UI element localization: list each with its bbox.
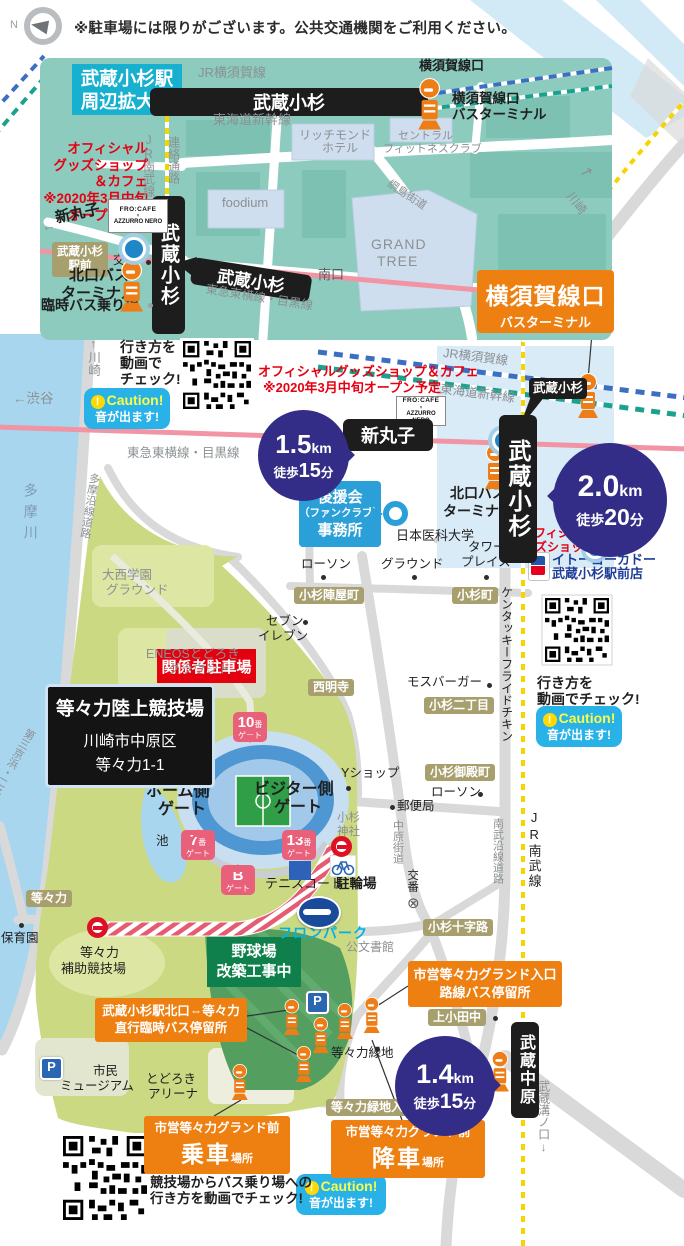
map-label: オフィシャルグッズショップ＆カフェ	[258, 365, 479, 379]
town-badge: 小杉二丁目	[424, 697, 494, 714]
map-label: 行き方を動画でチェック!	[150, 1192, 303, 1206]
inset-label: JR南武線	[142, 133, 155, 197]
town-badge: 西明寺	[308, 679, 354, 696]
bus-stop-icon	[336, 1003, 354, 1040]
town-badge: 小杉町	[452, 587, 498, 604]
bus-stop-box-boarding: 市営等々力グランド前 乗車場所	[144, 1116, 290, 1174]
route-map-poster: N ※駐車場には限りがございます。公共交通機関をご利用ください。 武蔵小杉駅 周…	[0, 0, 684, 1246]
poi-dot	[146, 260, 151, 265]
map-label: ゲート	[274, 800, 322, 817]
town-badge: 等々力	[26, 890, 72, 907]
map-label: 東急東横線・目黒線	[127, 447, 240, 460]
caution-box-1: !Caution! 音が出ます!	[84, 388, 170, 429]
bus-stop-icon	[231, 1064, 249, 1101]
map-label: 動画で	[120, 356, 162, 371]
inset-label: 横須賀線口	[452, 92, 520, 106]
town-badge: 小杉御殿町	[425, 764, 495, 781]
map-label: ←渋谷	[13, 392, 54, 406]
compass-icon	[24, 7, 62, 45]
map-label: 大西学園	[102, 569, 152, 582]
inset-label: ←	[40, 217, 57, 234]
poi-dot	[478, 792, 483, 797]
station-bubble-musashikosugi: 武蔵小杉	[529, 378, 587, 399]
poi-dot	[19, 923, 24, 928]
station-bar-musashikosugi-main: 武蔵小杉	[499, 415, 537, 563]
poi-dot	[375, 1047, 380, 1052]
gate-badge-10: 10番ゲート	[233, 712, 267, 742]
tennis-court-block	[289, 861, 311, 880]
map-label: イレブン	[258, 630, 308, 643]
gate-badge-7: 7番ゲート	[181, 830, 215, 860]
station-bar-shinmaruko: 新丸子	[343, 419, 433, 451]
map-label: グラウンド	[381, 558, 444, 571]
stadium-address-box: 等々力陸上競技場 川崎市中原区 等々力1-1	[45, 684, 215, 788]
poi-dot	[412, 575, 417, 580]
baseball-renovation-box: 野球場改築工事中	[207, 937, 301, 987]
map-label: 等々力緑地	[331, 1047, 394, 1060]
inset-label: 横須賀線口	[419, 59, 484, 73]
map-label: ローソン	[431, 786, 481, 799]
map-label: 武蔵小杉駅前店	[552, 567, 643, 581]
inset-label: foodium	[222, 196, 268, 210]
poi-dot	[148, 303, 153, 308]
inset-label: リッチモンド	[299, 129, 371, 142]
bus-stop-icon	[295, 1046, 313, 1083]
inset-label: 連絡通路	[167, 136, 180, 184]
inset-label: セントラル	[398, 131, 453, 143]
map-label: 交番	[406, 869, 418, 892]
no-entry-icon	[87, 917, 108, 938]
parking-icon: P	[306, 991, 329, 1014]
caution-box-2: !Caution! 音が出ます!	[536, 706, 622, 747]
map-label: 多摩川	[23, 483, 38, 546]
parking-notice: ※駐車場には限りがございます。公共交通機関をご利用ください。	[74, 17, 516, 38]
inset-label: ホテル	[322, 142, 358, 155]
map-label: ビジター側	[254, 782, 334, 799]
map-label: モスバーガー	[407, 676, 482, 689]
bus-stop-box-rinji: 武蔵小杉駅北口⇔等々力直行臨時バス停留所	[95, 998, 247, 1042]
frocafe-logo: FRO:CAFE×AZZURRO NERO	[108, 199, 168, 233]
inset-label: GRAND	[371, 237, 427, 252]
map-label: 郵便局	[397, 800, 435, 813]
inset-label: JR横須賀線	[198, 66, 266, 80]
poi-dot	[390, 805, 395, 810]
parking-icon: P	[40, 1057, 63, 1080]
map-label: ↑川崎	[86, 337, 99, 376]
map-label: ⊗	[407, 896, 420, 912]
map-label: 南武沿線道路	[491, 818, 503, 884]
map-label: ミュージアム	[60, 1080, 134, 1093]
bus-stop-icon	[283, 999, 301, 1036]
inset-label: フィットネスクラブ	[383, 144, 482, 156]
bus-stop-icon	[312, 1017, 330, 1054]
bus-stop-icon	[417, 78, 442, 131]
poi-dot	[487, 683, 492, 688]
map-label: 保育園	[1, 932, 39, 945]
poi-dot	[303, 620, 308, 625]
distance-badge-1-5km: 1.5km 徒歩15分	[258, 410, 349, 501]
location-marker	[122, 237, 146, 261]
map-label: 日本医科大学	[396, 529, 474, 543]
bus-stop-box-ground-iriguchi: 市営等々力グランド入口路線バス停留所	[408, 961, 562, 1007]
inset-label: TREE	[377, 254, 418, 269]
map-label: ローソン	[301, 558, 351, 571]
poi-dot	[346, 786, 351, 791]
map-label: アリーナ	[148, 1088, 198, 1101]
map-label: 等々力	[80, 946, 119, 960]
map-label: グラウンド	[168, 663, 231, 676]
bus-stop-icon	[363, 997, 381, 1034]
poi-dot	[493, 1016, 498, 1021]
gate-badge-13: 13番ゲート	[282, 830, 316, 860]
station-bar-musashinakahara: 武蔵中原	[511, 1022, 539, 1118]
town-badge: 小杉十字路	[423, 919, 493, 936]
bus-stop-icon	[119, 260, 144, 313]
no-entry-icon	[331, 836, 352, 857]
map-label: ゲート	[158, 802, 206, 819]
map-label: JR南武線	[527, 810, 541, 889]
bicycle-parking-icon	[330, 855, 356, 882]
poi-dot	[484, 575, 489, 580]
map-label: 行き方を	[120, 340, 176, 355]
inset-label: 南口	[318, 268, 344, 282]
map-label: ENEOSとどろき	[146, 648, 240, 661]
town-badge: 小杉陣屋町	[294, 587, 364, 604]
yokosuka-exit-terminal-box: 横須賀線口 バスターミナル	[477, 270, 614, 333]
frontale-park-logo	[297, 896, 341, 929]
poi-dot	[321, 575, 326, 580]
gate-badge-B: Bゲート	[221, 865, 255, 895]
map-label: 中原街道	[391, 820, 403, 864]
map-label: 小杉	[337, 812, 360, 824]
map-label: 市民	[93, 1065, 118, 1078]
map-label: とどろき	[146, 1073, 196, 1086]
inset-label: バスターミナル	[452, 108, 547, 122]
map-label: ※2020年3月中旬オープン予定	[263, 381, 441, 395]
map-label: 行き方を	[537, 676, 593, 691]
distance-badge-1-4km: 1.4km 徒歩15分	[395, 1036, 495, 1136]
map-label: ケンタッキーフライドチキン	[500, 586, 513, 742]
fanclub-location-marker	[383, 501, 408, 526]
compass-north-label: N	[10, 19, 18, 31]
map-label: チェック!	[120, 372, 181, 387]
town-badge: 上小田中	[428, 1009, 486, 1026]
map-label: グラウンド	[106, 584, 169, 597]
map-label: セブン	[266, 615, 304, 628]
map-label: 補助競技場	[61, 962, 126, 976]
map-label: 池	[156, 835, 169, 848]
map-label: 公文書館	[346, 941, 394, 954]
inset-label: 東海道新幹線	[213, 113, 291, 127]
map-label: 動画でチェック!	[537, 692, 640, 707]
map-label: Yショップ	[341, 767, 399, 780]
map-label: 競技場からバス乗り場への	[150, 1176, 312, 1190]
distance-badge-2-0km: 2.0km 徒歩20分	[553, 443, 667, 557]
